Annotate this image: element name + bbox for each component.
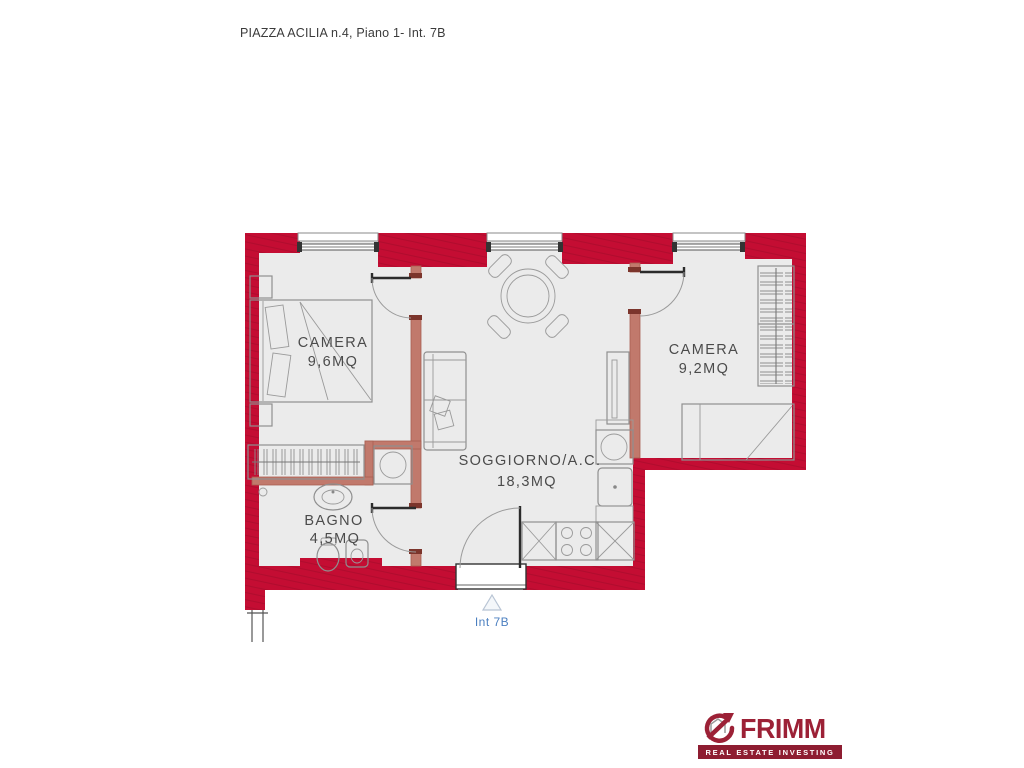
room-label-bagno: BAGNO (304, 513, 363, 529)
frimm-logo: FRIMM REAL ESTATE INVESTING (698, 710, 842, 759)
room-label-soggiorno: SOGGIORNO/A.C. (459, 453, 602, 469)
room-label-camera2: CAMERA (669, 342, 739, 358)
room-area-bagno: 4,5MQ (310, 531, 361, 547)
entrance-marker: Int 7B (475, 595, 509, 629)
room-area-soggiorno: 18,3MQ (497, 474, 557, 490)
brand-tagline: REAL ESTATE INVESTING (698, 745, 842, 759)
room-area-camera1: 9,6MQ (308, 354, 359, 370)
room-label-camera1: CAMERA (298, 335, 368, 351)
exterior-duct-icon (247, 610, 268, 642)
entrance-label: Int 7B (475, 615, 509, 629)
floor-plan-page: PIAZZA ACILIA n.4, Piano 1- Int. 7B (0, 0, 1024, 768)
frimm-logo-icon (698, 711, 738, 744)
room-area-camera2: 9,2MQ (679, 361, 730, 377)
wardrobe-icon (758, 266, 794, 386)
triangle-up-icon (483, 595, 501, 610)
wardrobe-icon (248, 445, 364, 479)
plan-title: PIAZZA ACILIA n.4, Piano 1- Int. 7B (240, 26, 446, 40)
floor-plan: PIAZZA ACILIA n.4, Piano 1- Int. 7B (0, 0, 1024, 768)
brand-name: FRIMM (740, 714, 826, 744)
